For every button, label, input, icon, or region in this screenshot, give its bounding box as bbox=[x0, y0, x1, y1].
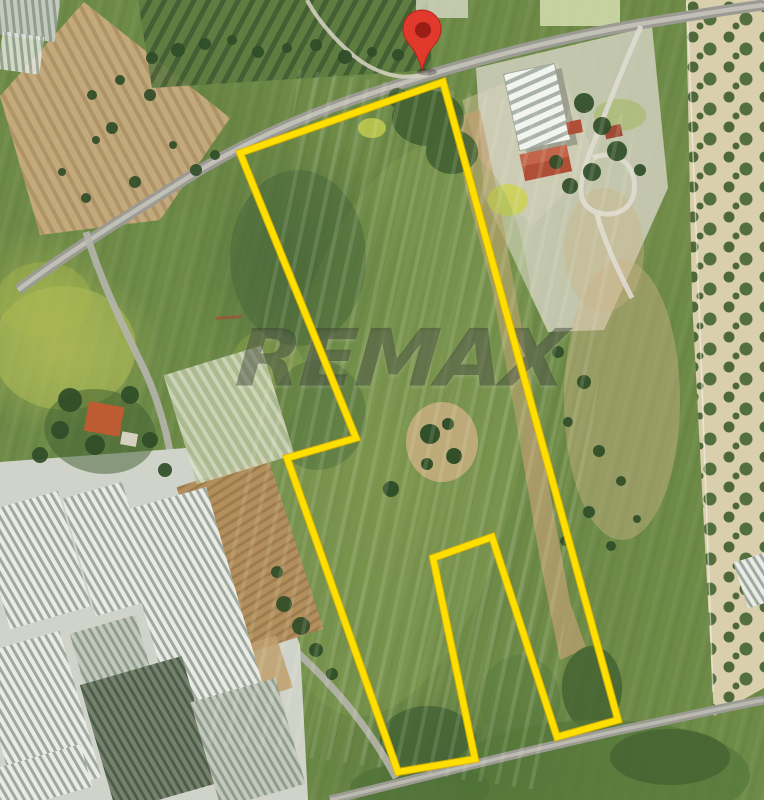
parcel-boundary bbox=[240, 82, 618, 772]
parcel-overlay bbox=[0, 0, 764, 800]
satellite-map[interactable]: REMAX bbox=[0, 0, 764, 800]
pin-shadow bbox=[417, 69, 437, 76]
pin-inner-dot bbox=[415, 22, 431, 38]
parcel-boundary-outline bbox=[240, 82, 618, 772]
pin-body bbox=[403, 10, 441, 70]
map-pin[interactable] bbox=[403, 10, 441, 76]
